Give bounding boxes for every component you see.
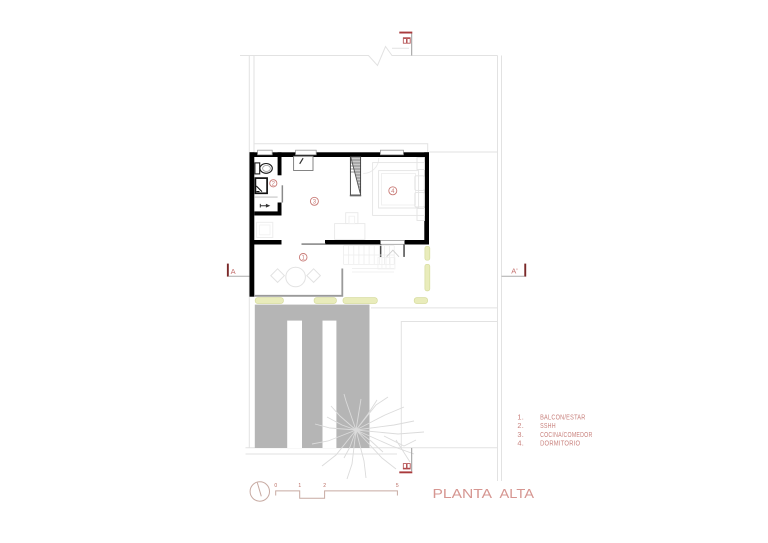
svg-text:2: 2 (323, 483, 326, 489)
svg-text:5: 5 (396, 483, 399, 489)
svg-text:ALTA: ALTA (500, 487, 535, 501)
svg-text:A: A (231, 267, 236, 276)
svg-text:COCINA/COMEDOR: COCINA/COMEDOR (540, 430, 592, 439)
svg-text:SSHH: SSHH (540, 421, 556, 430)
svg-text:3.: 3. (517, 430, 524, 439)
svg-text:DORMITORIO: DORMITORIO (540, 439, 580, 448)
svg-text:BALCON/ESTAR: BALCON/ESTAR (540, 412, 585, 421)
svg-text:2.: 2. (517, 421, 524, 430)
svg-text:A': A' (511, 266, 518, 275)
svg-text:1.: 1. (517, 412, 524, 421)
svg-text:4.: 4. (517, 439, 524, 448)
svg-text:0: 0 (274, 483, 277, 489)
svg-text:1: 1 (298, 483, 301, 489)
svg-text:PLANTA: PLANTA (433, 487, 493, 501)
